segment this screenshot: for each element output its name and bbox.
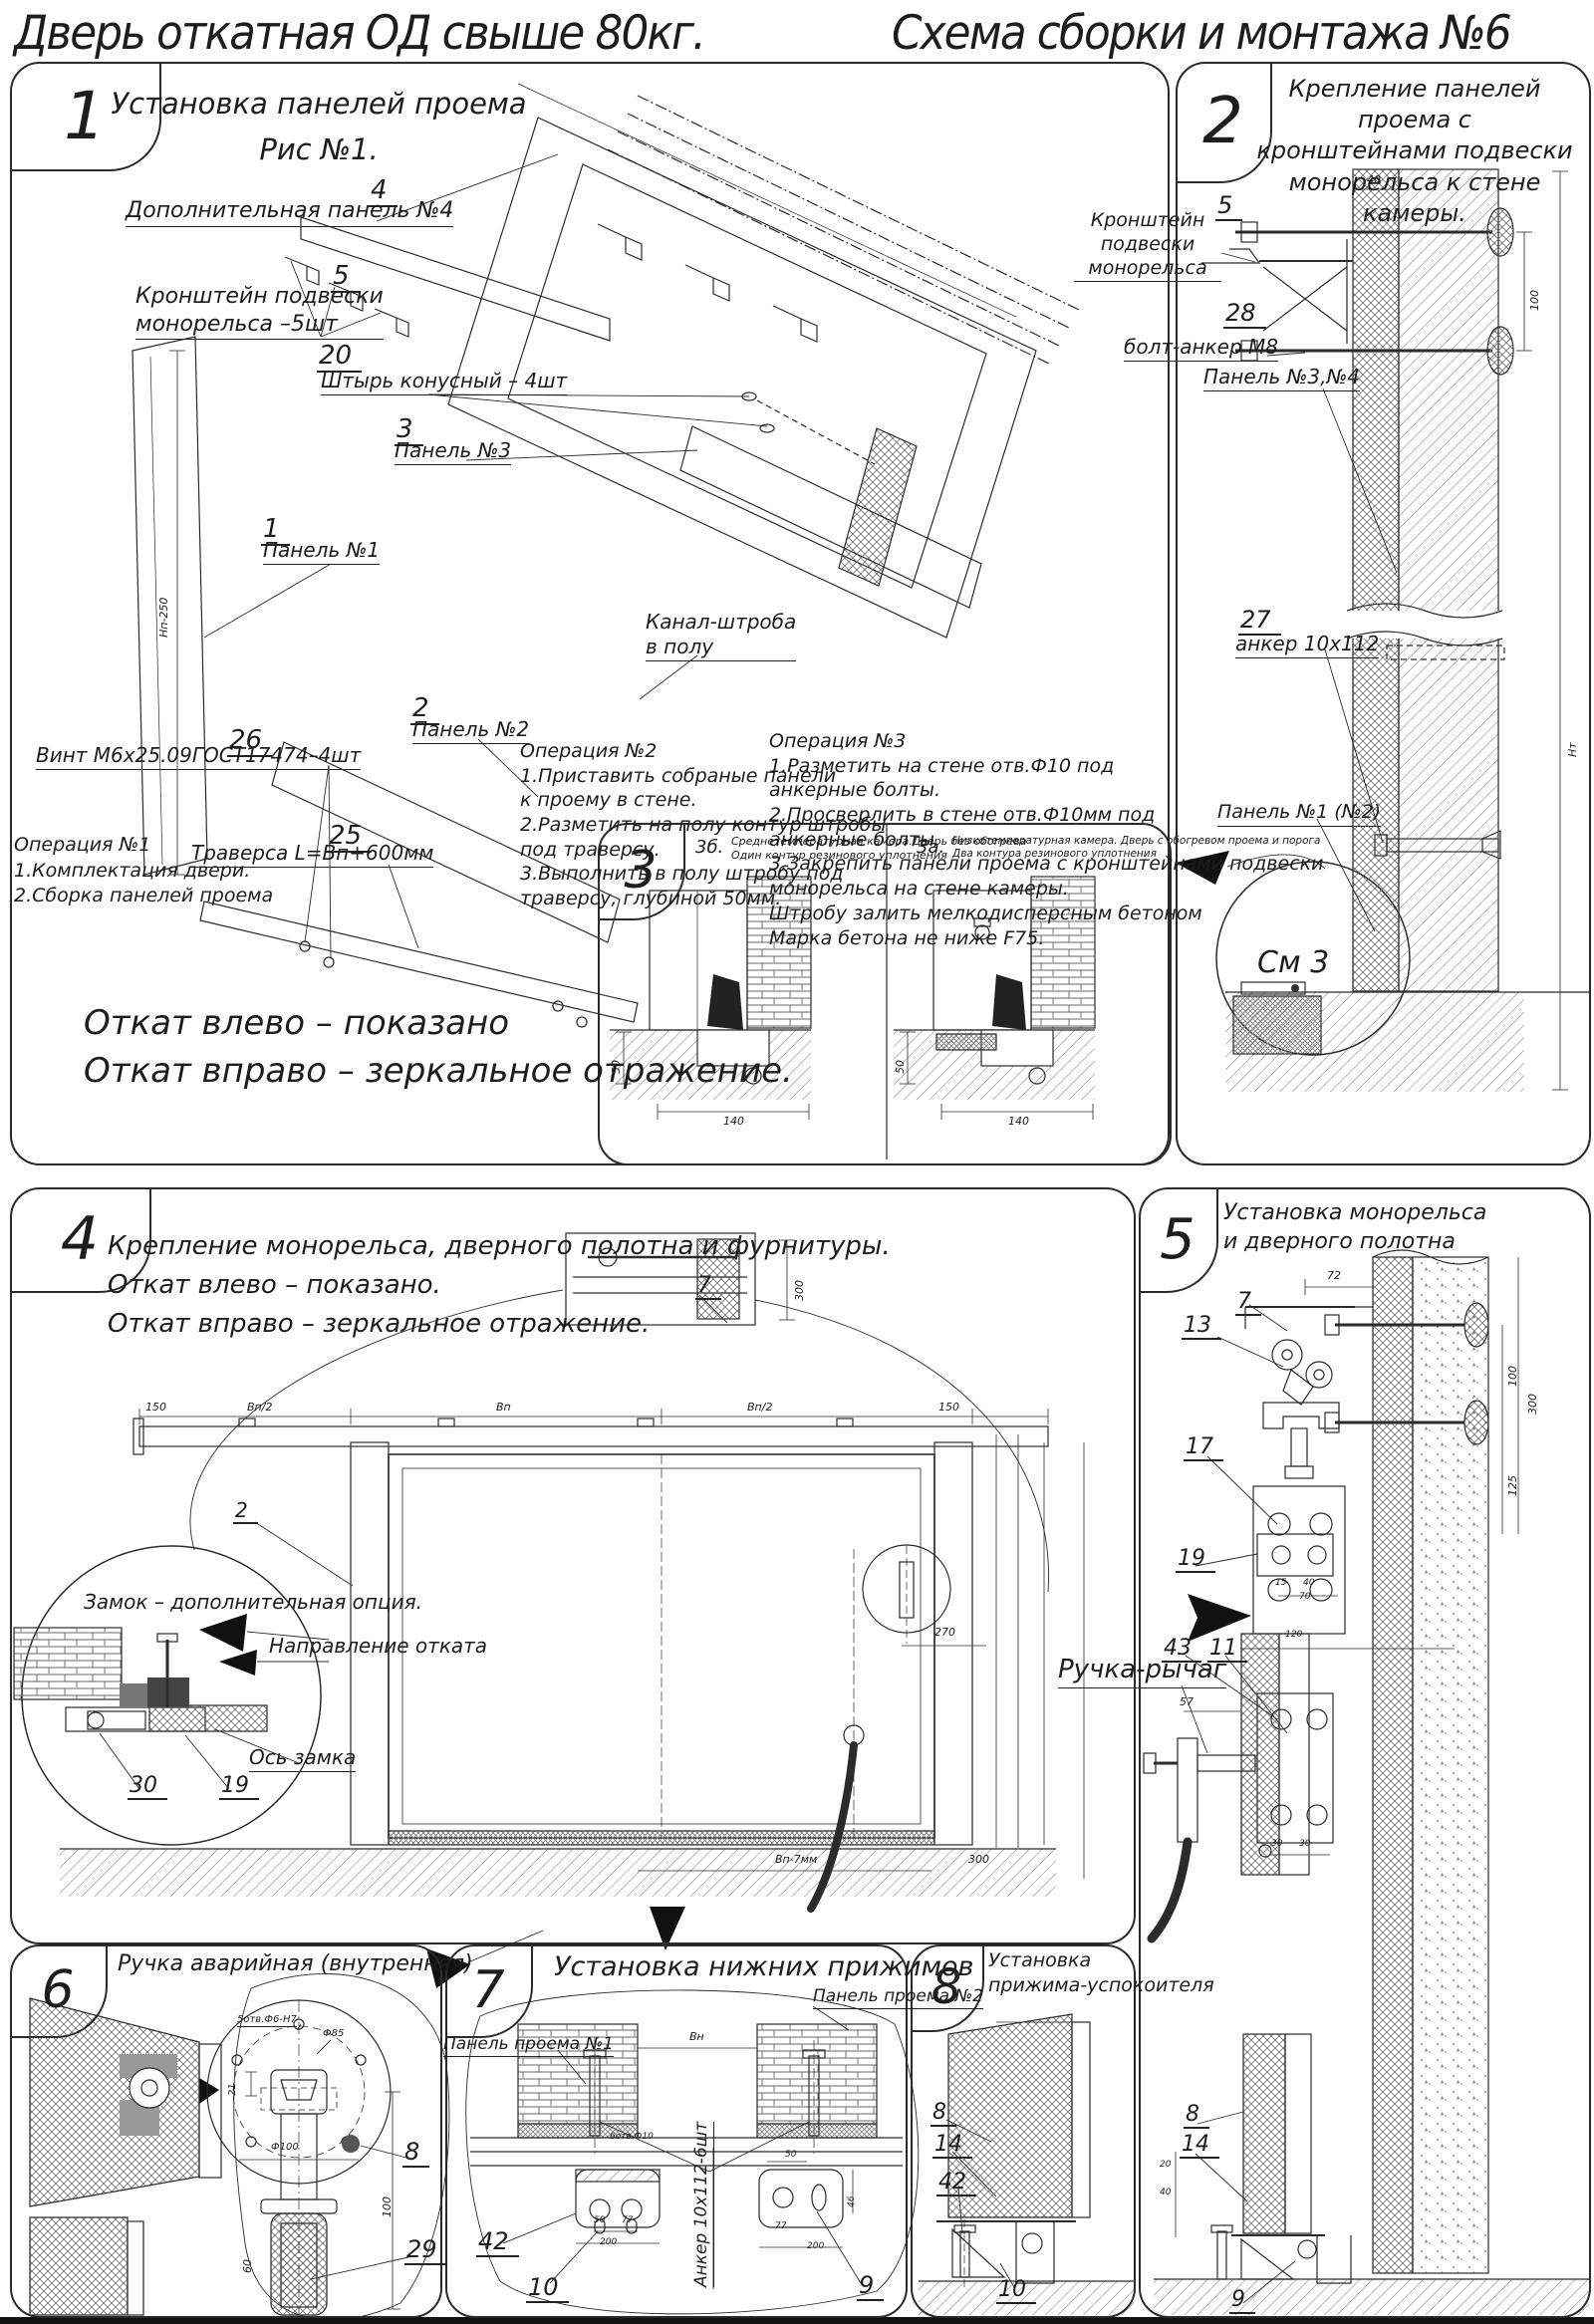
dim-50-left: 50 (610, 1060, 623, 1074)
p5-callout-8: 8 (1184, 2102, 1209, 2129)
panel-6-number-label: 6 (41, 1960, 74, 2020)
sheet-bottom-edge (0, 2317, 1594, 2324)
dim-72: 72 (1327, 1269, 1341, 1282)
dim-30b: 30 (1299, 1839, 1310, 1849)
dim-50-r: 50 (785, 2150, 796, 2160)
floor-channel-label: Канал-штроба в полу (646, 610, 796, 661)
dim-50-l: 50 (594, 2215, 605, 2225)
view-3b-label: 3б. (695, 837, 723, 860)
p8-callout-42: 42 (936, 2170, 976, 2196)
p8-title: Установка прижима-успокоителя (988, 1948, 1214, 1997)
lever-handle-label: Ручка-рычаг (1058, 1654, 1226, 1688)
callout-19-number: 19 (219, 1773, 259, 1800)
dim-60: 60 (241, 2259, 254, 2273)
p8-callout-14: 14 (932, 2132, 972, 2159)
dim-20: 20 (1160, 2160, 1171, 2170)
p7-callout-42: 42 (476, 2227, 519, 2257)
dim-30a: 30 (1271, 1839, 1282, 1849)
callout-20-text: Штырь конусный – 4шт (321, 369, 567, 395)
callout-5-text: Кронштейн подвески монорельса –5шт (135, 283, 384, 340)
p5-callout-9: 9 (1229, 2287, 1255, 2314)
callout-1-text: Панель №1 (263, 538, 380, 565)
dim-300-bottom: 300 (968, 1853, 989, 1866)
dim-300-p5: 300 (1526, 1394, 1539, 1415)
p7-title: Установка нижних прижимов (554, 1950, 973, 1984)
p7-callout-10: 10 (526, 2273, 569, 2303)
panel-7-number-label: 7 (471, 1960, 504, 2020)
dim-140-right: 140 (1008, 1115, 1029, 1128)
p5-callout-17: 17 (1184, 1434, 1223, 1461)
p4-callout-2-number: 2 (233, 1498, 258, 1524)
dim-46: 46 (847, 2196, 857, 2207)
holes-5-f6: 5отв.Ф6-Н7 (237, 2014, 297, 2027)
slide-left-note: Откат влево – показано (84, 1002, 509, 1045)
dim-vp: Вп (496, 1401, 511, 1414)
dim-70: 70 (1299, 1592, 1310, 1602)
p5-callout-7: 7 (1235, 1289, 1261, 1316)
operation-1-note: Операция №1 1.Комплектация двери. 2.Сбор… (14, 833, 273, 909)
dim-f85: Ф85 (323, 2028, 344, 2039)
p8-callout-10: 10 (996, 2277, 1036, 2304)
callout-3-text: Панель №3 (395, 438, 511, 465)
p7-callout-9: 9 (857, 2271, 884, 2301)
slide-right-note: Откат вправо – зеркальное отражение. (84, 1050, 793, 1093)
dim-150-right: 150 (938, 1401, 959, 1414)
p2-callout-5-text: Кронштейн подвески монорельса (1074, 209, 1221, 282)
p5-callout-19: 19 (1176, 1546, 1215, 1573)
dim-77-l: 77 (622, 2215, 633, 2225)
p2-panel34-label: Панель №3,№4 (1203, 365, 1360, 391)
p2-panel12-label: Панель №1 (№2) (1217, 801, 1381, 827)
p4-callout-7-number: 7 (695, 1273, 721, 1300)
dim-50-right: 50 (894, 1060, 907, 1074)
dim-300-detail: 300 (793, 1280, 806, 1301)
panel-2-number-label: 2 (1202, 85, 1243, 158)
dim-77-r: 77 (775, 2221, 786, 2231)
dim-270: 270 (934, 1626, 955, 1639)
p5-callout-13: 13 (1182, 1313, 1221, 1340)
callout-2-text: Панель №2 (412, 717, 529, 744)
callout-4-text: Дополнительная панель №4 (126, 197, 453, 227)
slide-direction-label: Направление отката (269, 1634, 487, 1659)
dim-40a: 40 (1303, 1578, 1314, 1588)
dim-vp2-right: Вп/2 (747, 1401, 772, 1414)
dim-nt: Нт (1566, 742, 1579, 757)
p6-callout-29: 29 (404, 2235, 447, 2265)
p2-callout-28-number: 28 (1223, 299, 1266, 329)
dim-panel-height: Нп-250 (157, 598, 170, 638)
dim-100-p5: 100 (1506, 1366, 1519, 1387)
dim-vp7: Вп-7мм (775, 1853, 817, 1866)
callout-26-text: Винт М6х25.09ГОСТ17474–4шт (36, 743, 361, 770)
opening-panel-2-label: Панель проема №2 (813, 1986, 983, 2009)
p8-callout-8: 8 (930, 2100, 956, 2127)
panel-4-number-label: 4 (61, 1204, 99, 1274)
dim-100-p6: 100 (381, 2196, 394, 2217)
view-3a-label: 3а. (917, 837, 944, 860)
dim-40: 40 (1367, 173, 1381, 186)
p4-title: Крепление монорельса, дверного полотна и… (108, 1227, 891, 1344)
see-detail-3-label: См 3 (1257, 944, 1329, 982)
lock-option-note: Замок – дополнительная опция. (84, 1590, 422, 1615)
sheet-title-left: Дверь откатная ОД свыше 80кг. (14, 6, 704, 61)
holes-6-f10: 6отв.Ф10 (610, 2132, 654, 2142)
dim-f100: Ф100 (271, 2142, 299, 2153)
p2-callout-28-text: болт-анкер М8 (1124, 335, 1278, 362)
dim-120: 120 (1285, 1630, 1302, 1640)
dim-21: 21 (227, 2083, 238, 2096)
dim-57: 57 (1180, 1695, 1194, 1708)
drawing-sheet: 1 2 3 4 5 6 7 8 Дверь откатная ОД свыше … (0, 0, 1594, 2324)
p1-figure-label: Рис №1. (100, 131, 538, 167)
view-3a-note: Низкотемпературная камера. Дверь с обогр… (952, 835, 1320, 861)
dim-100: 100 (1528, 290, 1541, 311)
dim-200-r: 200 (807, 2241, 824, 2251)
dim-40b: 40 (1160, 2188, 1171, 2197)
p6-title: Ручка аварийная (внутренняя) (118, 1950, 473, 1978)
callout-30-number: 30 (128, 1773, 167, 1800)
p6-callout-8: 8 (402, 2138, 429, 2168)
lock-axis-label: Ось замка (249, 1745, 356, 1772)
p2-title: Крепление панелей проема с кронштейнами … (1250, 74, 1579, 229)
dim-15: 15 (1275, 1578, 1286, 1588)
opening-panel-1-label: Панель проема №1 (443, 2034, 614, 2057)
dim-vp2-left: Вп/2 (247, 1401, 272, 1414)
dim-200-l: 200 (600, 2237, 617, 2247)
panel-5-number-label: 5 (1160, 1207, 1195, 1272)
p1-title: Установка панелей проема (100, 86, 538, 122)
anchor-spec-label: Анкер 10х112-6шт (691, 2122, 714, 2287)
sheet-title-right: Схема сборки и монтажа №6 (892, 6, 1510, 61)
p5-callout-14: 14 (1180, 2132, 1219, 2159)
dim-vn: Вн (689, 2030, 704, 2043)
dim-125: 125 (1506, 1475, 1519, 1496)
p5-title: Установка монорельса и дверного полотна (1223, 1199, 1486, 1256)
p2-callout-27-text: анкер 10х112 (1235, 632, 1379, 658)
dim-150-left: 150 (145, 1401, 166, 1414)
dim-140-left: 140 (723, 1115, 744, 1128)
